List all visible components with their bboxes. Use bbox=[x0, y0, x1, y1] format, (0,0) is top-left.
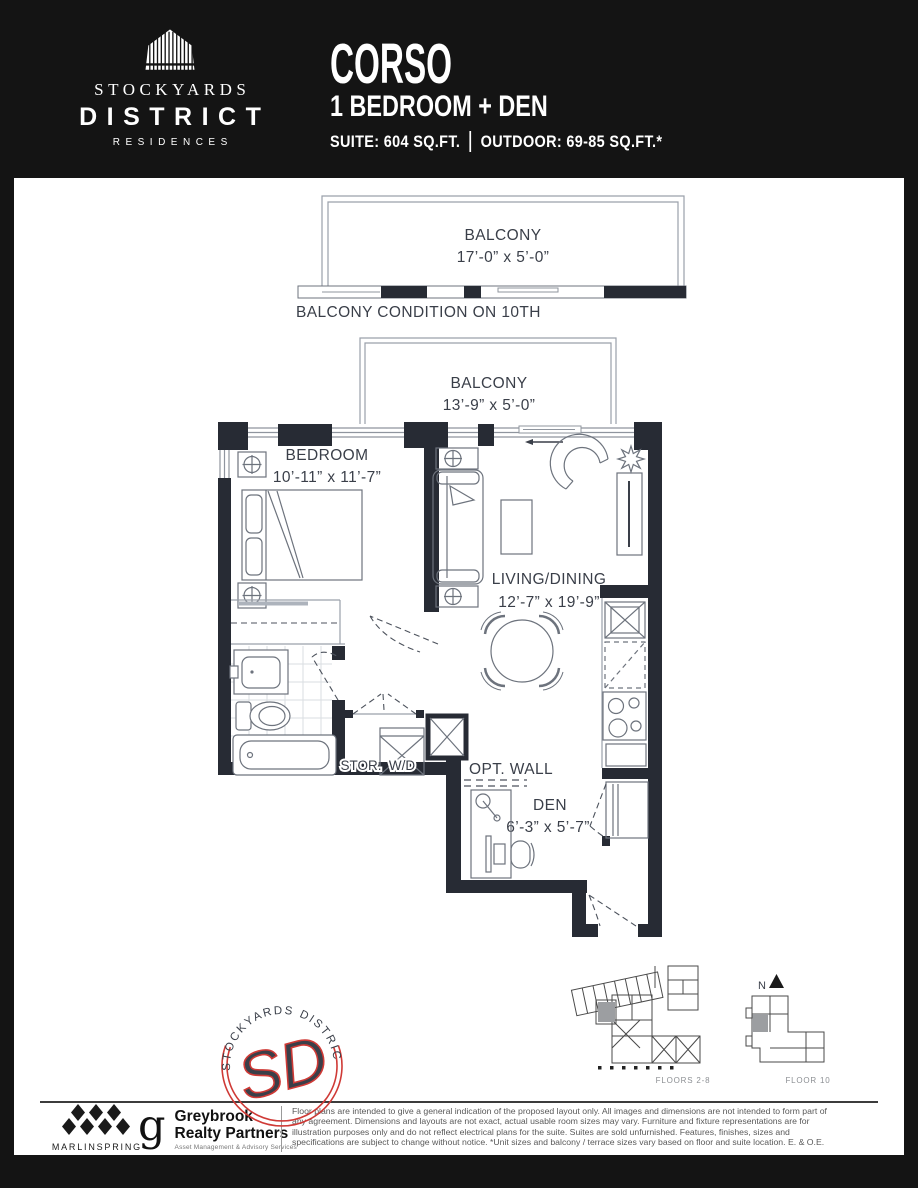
balcony-main: BALCONY 13’-9” x 5’-0” bbox=[360, 338, 616, 424]
stove bbox=[603, 692, 646, 740]
den-dims: 6’-3” x 5’-7” bbox=[506, 819, 590, 836]
desk-chair bbox=[511, 841, 534, 868]
balcony-10th: BALCONY 17’-0” x 5’-0” BALCONY CONDITION… bbox=[296, 196, 686, 321]
keyplan-floors-2-8 bbox=[571, 966, 700, 1070]
floorplan-drawing: BALCONY 17’-0” x 5’-0” BALCONY CONDITION… bbox=[0, 0, 918, 1188]
optional-wall-label: OPT. WALL bbox=[469, 761, 553, 778]
lounge-chair bbox=[550, 434, 608, 489]
bathtub bbox=[233, 735, 336, 775]
shaft bbox=[428, 716, 466, 758]
tv-console bbox=[617, 473, 642, 555]
bedroom: BEDROOM 10’-11” x 11’-7” bbox=[231, 447, 438, 652]
den-label: DEN bbox=[533, 797, 567, 814]
keyplan-floor-10-label: FLOOR 10 bbox=[785, 1076, 830, 1085]
keyplan-floors-2-8-label: FLOORS 2-8 bbox=[656, 1076, 711, 1085]
balcony-dims: 13’-9” x 5’-0” bbox=[443, 397, 536, 414]
balcony-label: BALCONY bbox=[451, 375, 528, 392]
coffee-table bbox=[501, 500, 532, 554]
plant bbox=[618, 446, 644, 472]
dining-table bbox=[481, 612, 563, 690]
stamp-arc-text: STOCKYARDS DISTRICT bbox=[0, 0, 343, 1071]
living-dims: 12’-7” x 19’-9” bbox=[498, 594, 600, 611]
den: DEN 6’-3” x 5’-7” OPT. WALL bbox=[464, 761, 636, 926]
balcony-10th-note: BALCONY CONDITION ON 10TH bbox=[296, 304, 541, 321]
fridge bbox=[590, 782, 648, 838]
toilet bbox=[236, 702, 290, 730]
optional-wall-line bbox=[464, 780, 527, 786]
living-label: LIVING/DINING bbox=[492, 571, 607, 588]
storage-label: STOR. bbox=[340, 758, 381, 773]
sofa bbox=[433, 470, 483, 584]
balcony-10th-dims: 17’-0” x 5’-0” bbox=[457, 249, 550, 266]
kitchen bbox=[590, 598, 648, 838]
kitchen-sink bbox=[605, 602, 645, 638]
bedroom-door-swing bbox=[370, 616, 438, 652]
bathroom bbox=[230, 646, 338, 775]
keyplan-floor-10 bbox=[746, 996, 824, 1062]
upper-cabinets bbox=[605, 642, 645, 688]
floorplan-sheet: STOCKYARDS DISTRICT RESIDENCES CORSO 1 B… bbox=[0, 0, 918, 1188]
living-dining: LIVING/DINING 12’-7” x 19’-9” bbox=[433, 434, 644, 690]
kitchen-cabinet bbox=[606, 744, 646, 766]
bath-vanity-sink bbox=[230, 650, 288, 694]
bedroom-dims: 10’-11” x 11’-7” bbox=[273, 469, 381, 486]
balcony-10th-label: BALCONY bbox=[465, 227, 542, 244]
north-label: N bbox=[758, 980, 766, 992]
entry-door-swing bbox=[589, 895, 636, 926]
bedroom-closet bbox=[231, 600, 345, 644]
north-arrow-icon bbox=[769, 974, 784, 988]
bed bbox=[242, 490, 362, 580]
bedroom-label: BEDROOM bbox=[286, 447, 369, 464]
desk bbox=[471, 790, 511, 878]
stockyards-district-stamp: STOCKYARDS DISTRICT SD bbox=[0, 0, 343, 1126]
washer-dryer-label: W/D bbox=[389, 758, 415, 773]
stamp-monogram: SD bbox=[230, 1022, 335, 1115]
